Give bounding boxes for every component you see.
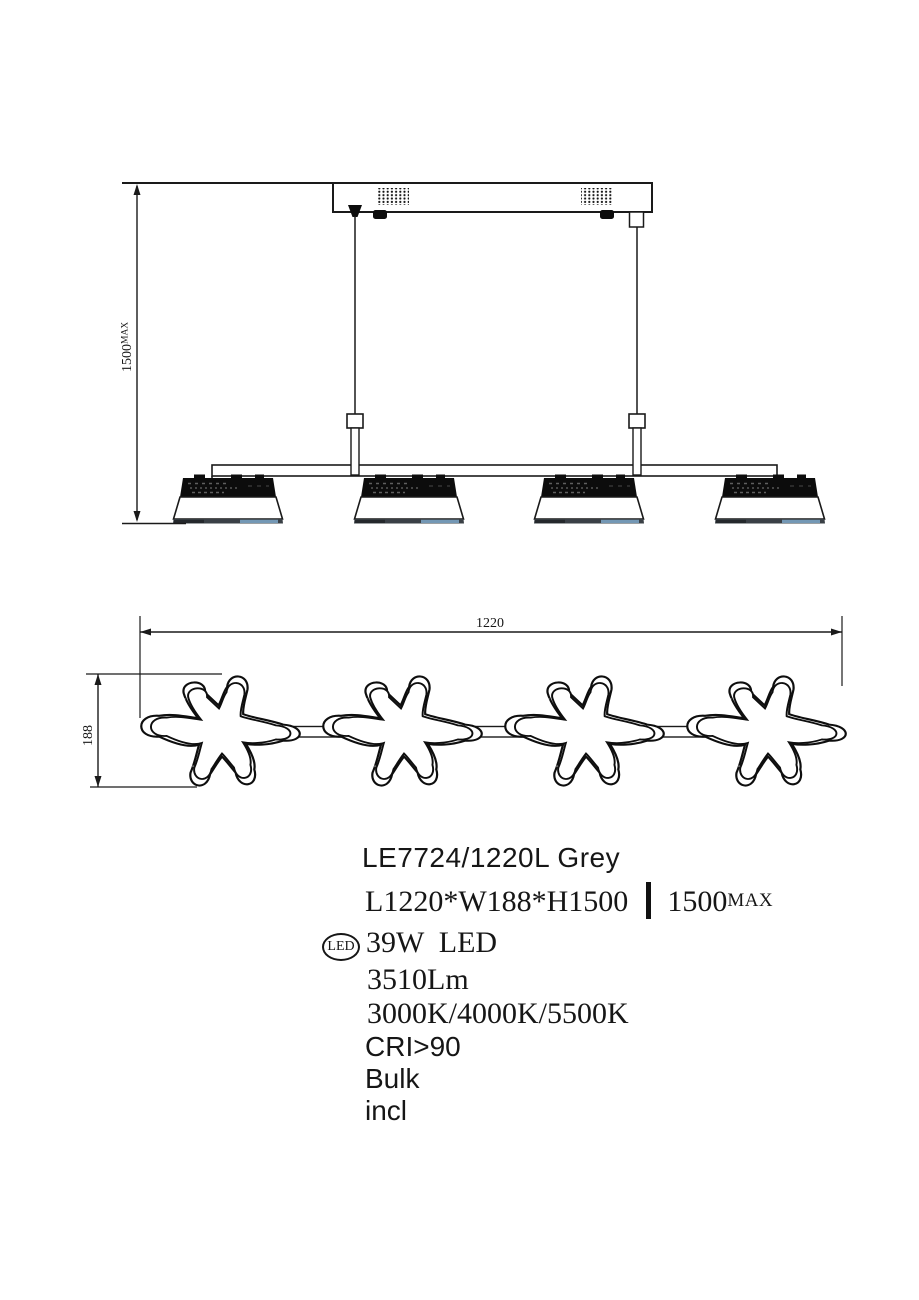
lamp-shade-1 [173,475,283,524]
vent-grid-right [581,188,613,205]
size-line: L1220*W188*H15001500MAX [365,882,773,919]
led-badge-icon: LED [322,933,360,961]
frame-bar [212,465,777,481]
power-text: 39W LED [366,926,497,959]
lamp-blob-4 [687,676,846,785]
lamp-shade-3 [534,475,644,524]
canopy-knob-left [373,210,387,219]
plan-view: 1220 188 [81,616,846,787]
height-max-value: 1500 [667,885,727,918]
canopy-knob-right [600,210,614,219]
luminous-flux: 3510Lm [367,963,469,997]
size-text: L1220*W188*H1500 [365,885,628,918]
cri-value: CRI>90 [365,1031,461,1063]
dimension-length-label: 1220 [476,616,504,631]
lamp-blob-3 [505,676,664,785]
wire-clip [630,212,644,227]
dimension-height: 1500MAX [120,184,141,522]
lamp-shade-2 [354,475,464,524]
bulk-text: Bulk [365,1063,419,1095]
power-line: LED39W LED [322,926,497,961]
dimension-width-label: 188 [81,725,96,746]
technical-drawing: 1500MAX 1220 188 [0,0,919,820]
lamp-shade-4 [715,475,825,524]
product-spec-sheet: 1500MAX 1220 188 [0,0,919,1300]
lamp-blob-1 [141,676,300,785]
dimension-height-label: 1500MAX [120,322,135,372]
height-max-suffix: MAX [727,890,773,911]
model-name: LE7724/1220L Grey [362,842,620,874]
lamp-blob-2 [323,676,482,785]
incl-text: incl [365,1095,407,1127]
vent-grid-left [377,188,409,205]
side-elevation-view: 1500MAX [120,183,825,524]
ceiling-canopy [333,183,652,227]
divider-bar [646,882,651,919]
color-temperature: 3000K/4000K/5500K [367,997,629,1031]
